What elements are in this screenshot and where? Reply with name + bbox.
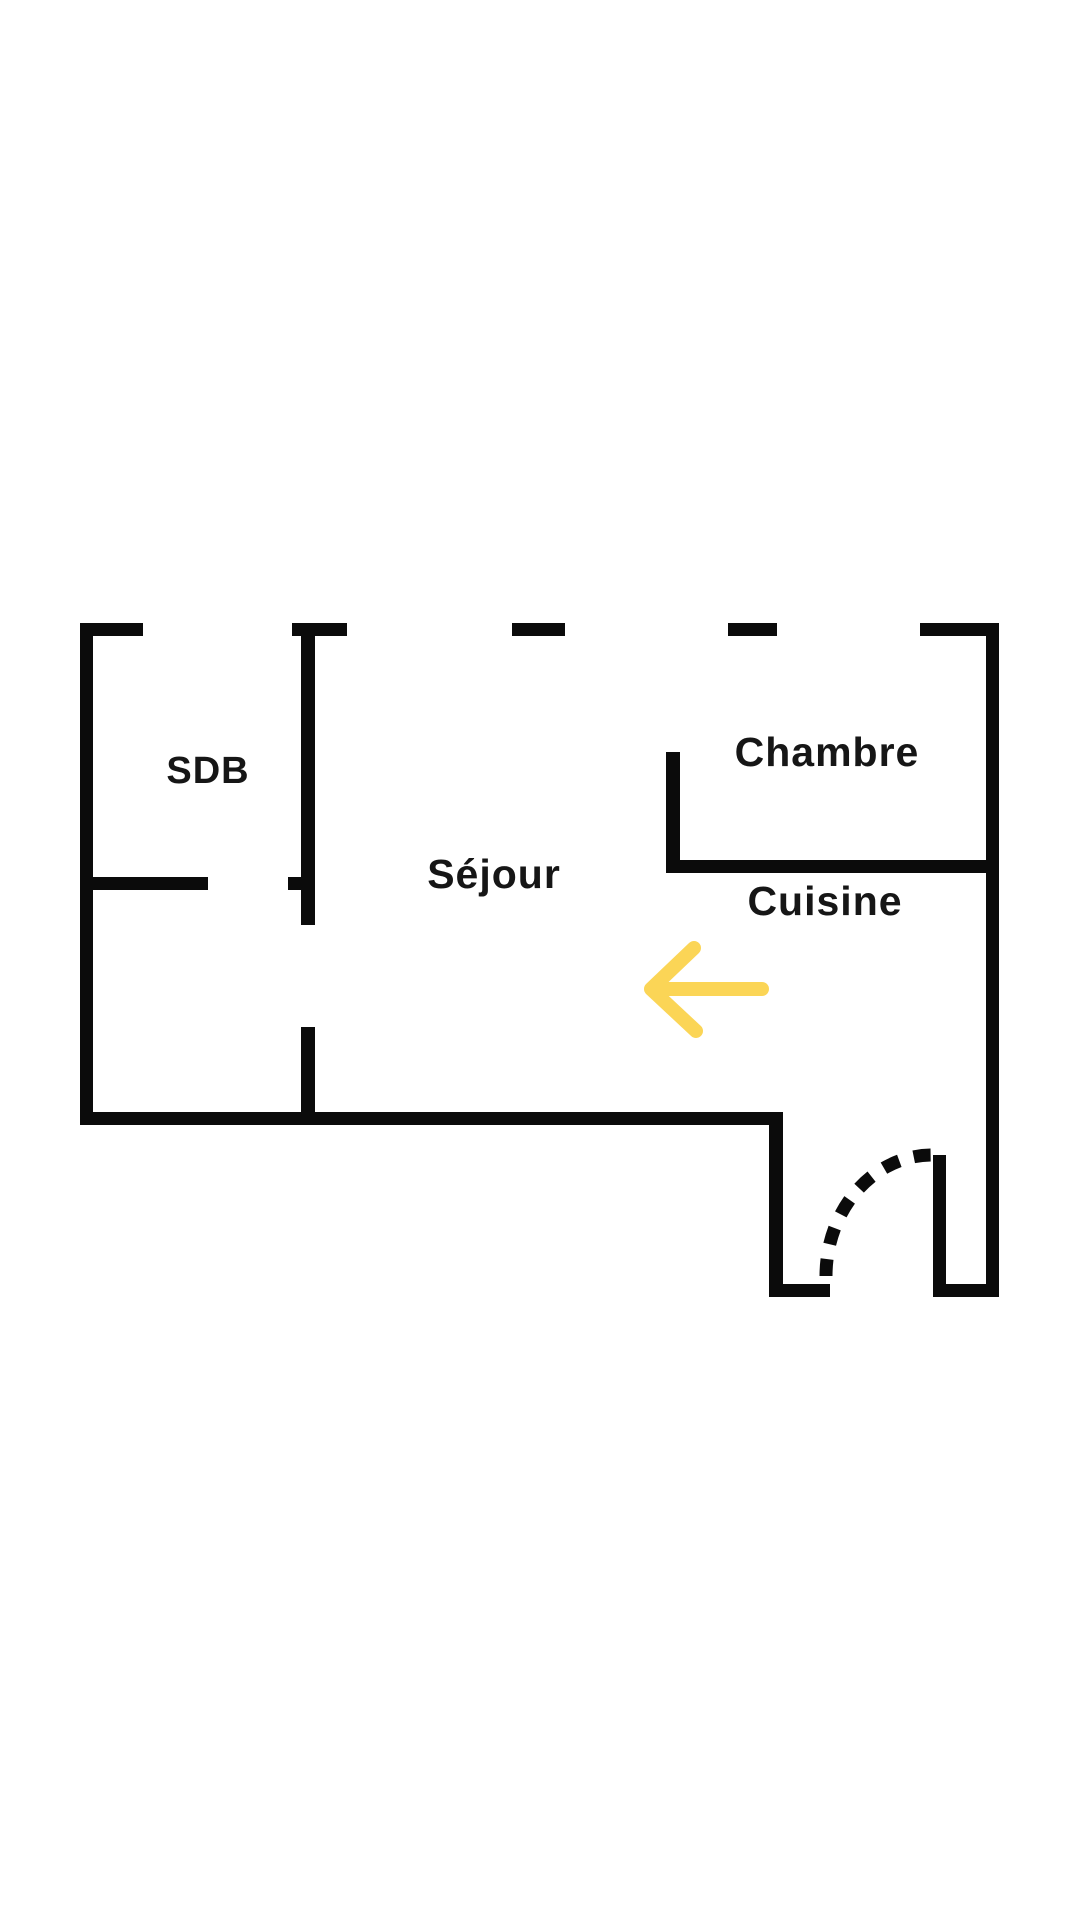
bottom-wall [80,1112,783,1125]
entry-door-post [933,1155,946,1284]
right-wall [986,623,999,1297]
divider-wall-upper [301,623,315,925]
chambre-bottom-wall [666,860,999,873]
top-wall-segment-3 [512,623,565,636]
entry-left-foot [769,1284,830,1297]
top-wall-segment-4 [728,623,777,636]
room-label-sejour: Séjour [427,851,561,897]
door-swing-arc [826,1155,932,1276]
arrow-left-icon [651,948,762,1031]
chambre-left-wall [666,752,680,873]
divider-wall-tick [288,877,301,890]
entry-left-wall [769,1112,783,1297]
room-labels: SDB Séjour Chambre Cuisine [166,729,919,924]
left-wall [80,623,93,1125]
floor-plan-drawing: SDB Séjour Chambre Cuisine [0,0,1080,1920]
top-wall-segment-2 [292,623,347,636]
floor-plan-page: SDB Séjour Chambre Cuisine [0,0,1080,1920]
divider-wall-lower [301,1027,315,1125]
sdb-bottom-wall [80,877,208,890]
room-label-chambre: Chambre [735,729,920,775]
entry-right-foot [933,1284,999,1297]
room-label-sdb: SDB [166,750,249,792]
room-label-cuisine: Cuisine [747,878,902,924]
exterior-walls [80,623,999,1297]
